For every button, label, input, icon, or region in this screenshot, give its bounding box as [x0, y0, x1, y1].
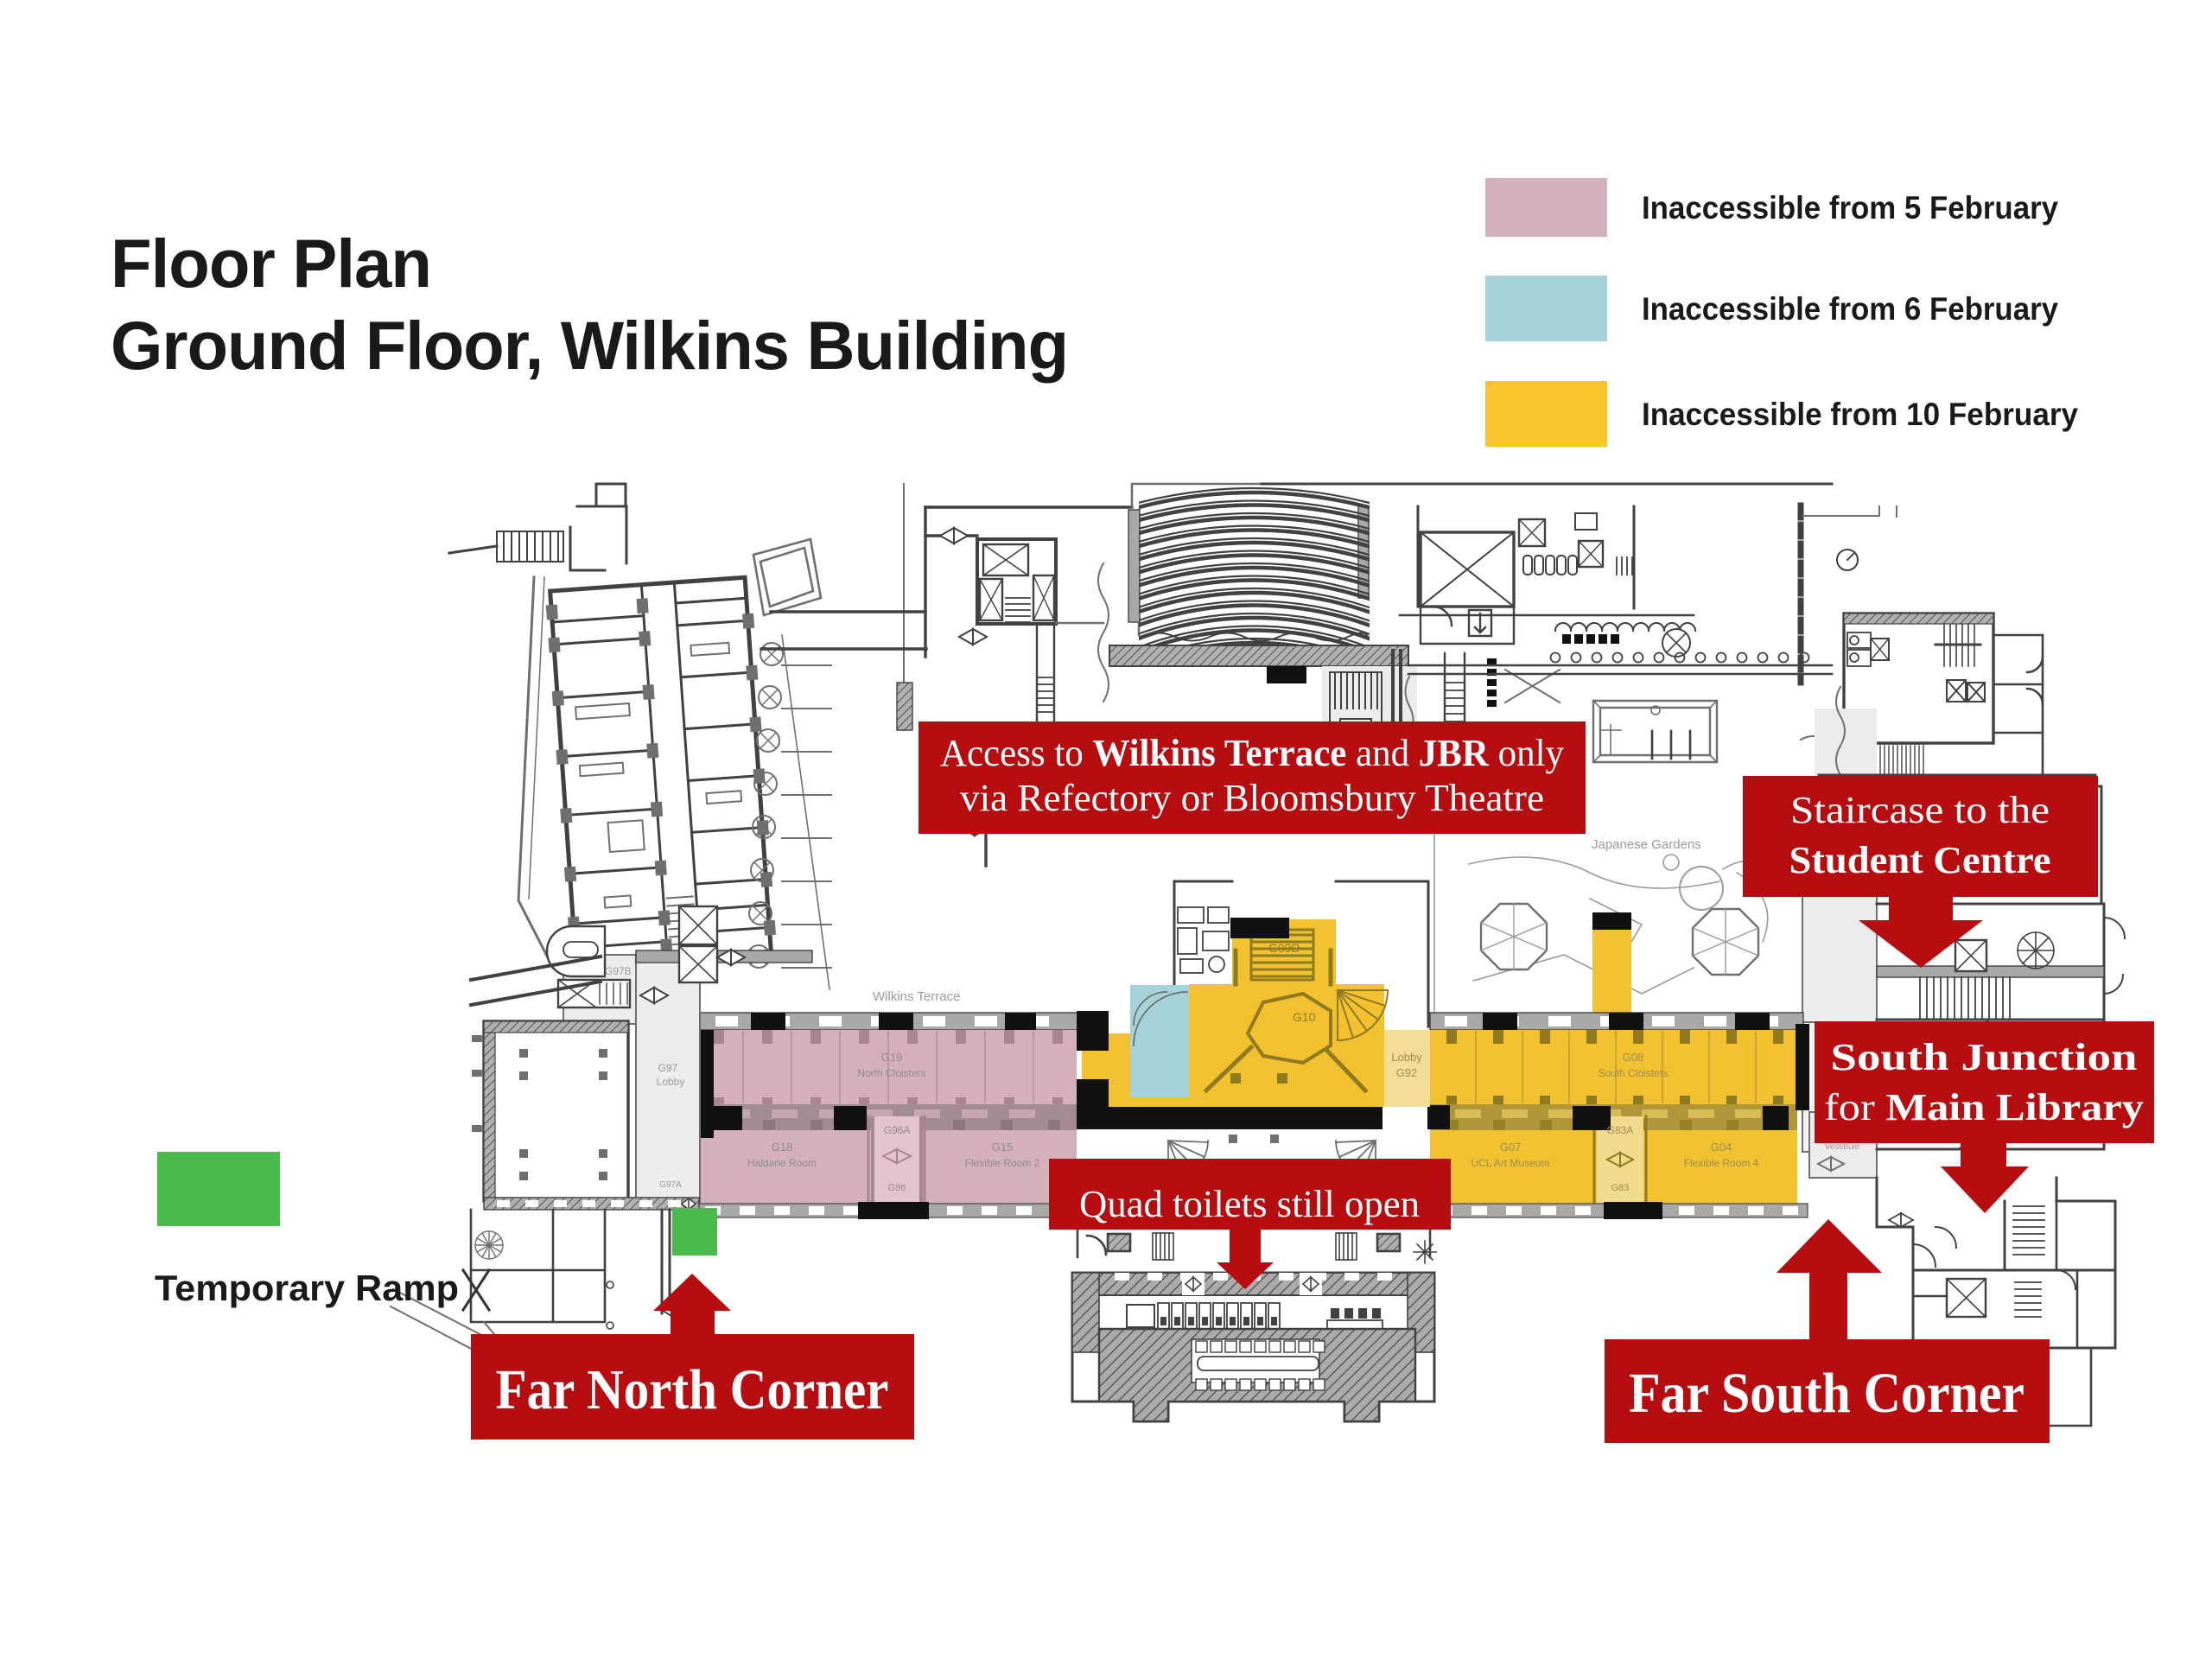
svg-text:G08: G08 [1623, 1051, 1644, 1064]
svg-text:Haldane Room: Haldane Room [747, 1157, 817, 1169]
svg-text:Inaccessible from 6 February: Inaccessible from 6 February [1642, 291, 2058, 327]
svg-text:G97: G97 [658, 1062, 678, 1074]
svg-text:South Cloisters: South Cloisters [1598, 1067, 1668, 1079]
svg-text:G96A: G96A [884, 1124, 911, 1136]
svg-text:Lobby: Lobby [1391, 1051, 1422, 1064]
svg-text:Access to Wilkins Terrace and: Access to Wilkins Terrace and JBR only [940, 732, 1564, 774]
svg-text:Wilkins Terrace: Wilkins Terrace [873, 989, 960, 1004]
svg-text:Temporary Ramp: Temporary Ramp [155, 1268, 459, 1308]
svg-text:Lobby: Lobby [657, 1076, 685, 1088]
svg-text:Far North Corner: Far North Corner [496, 1358, 889, 1421]
svg-text:G97B: G97B [605, 965, 632, 977]
svg-text:G07: G07 [1500, 1141, 1522, 1154]
svg-text:G83: G83 [1611, 1183, 1630, 1193]
svg-text:G97A: G97A [659, 1180, 682, 1190]
svg-text:UCL Art Museum: UCL Art Museum [1471, 1157, 1550, 1169]
svg-text:Japanese Gardens: Japanese Gardens [1592, 837, 1701, 852]
svg-text:Student Centre: Student Centre [1789, 839, 2051, 881]
svg-text:South Junction: South Junction [1831, 1036, 2138, 1078]
svg-text:Floor Plan: Floor Plan [111, 225, 431, 302]
svg-text:Vestibule: Vestibule [1825, 1142, 1860, 1152]
svg-text:G04: G04 [1711, 1141, 1732, 1154]
svg-text:Flexible Room 4: Flexible Room 4 [1684, 1157, 1759, 1169]
svg-text:G92: G92 [1396, 1066, 1418, 1079]
svg-text:via Refectory or Bloomsbury Th: via Refectory or Bloomsbury Theatre [960, 777, 1544, 819]
svg-text:G96: G96 [888, 1183, 906, 1193]
svg-text:G15: G15 [992, 1141, 1014, 1154]
svg-text:Ground Floor, Wilkins Building: Ground Floor, Wilkins Building [111, 307, 1068, 384]
svg-text:Quad toilets still open: Quad toilets still open [1079, 1183, 1420, 1225]
svg-text:G83A: G83A [1607, 1124, 1634, 1136]
svg-text:Inaccessible from 10 February: Inaccessible from 10 February [1642, 397, 2078, 432]
svg-text:G19: G19 [881, 1051, 903, 1064]
svg-text:Far South Corner: Far South Corner [1629, 1362, 2024, 1425]
svg-text:G10: G10 [1293, 1010, 1316, 1024]
svg-text:Inaccessible from 5 February: Inaccessible from 5 February [1642, 190, 2058, 226]
svg-text:North Cloisters: North Cloisters [857, 1067, 925, 1079]
svg-text:Staircase to the: Staircase to the [1790, 789, 2050, 831]
svg-text:Flexible Room 2: Flexible Room 2 [965, 1157, 1040, 1169]
svg-text:G09D: G09D [1268, 941, 1300, 955]
svg-text:G18: G18 [772, 1141, 793, 1154]
svg-text:for Main Library: for Main Library [1824, 1086, 2144, 1128]
